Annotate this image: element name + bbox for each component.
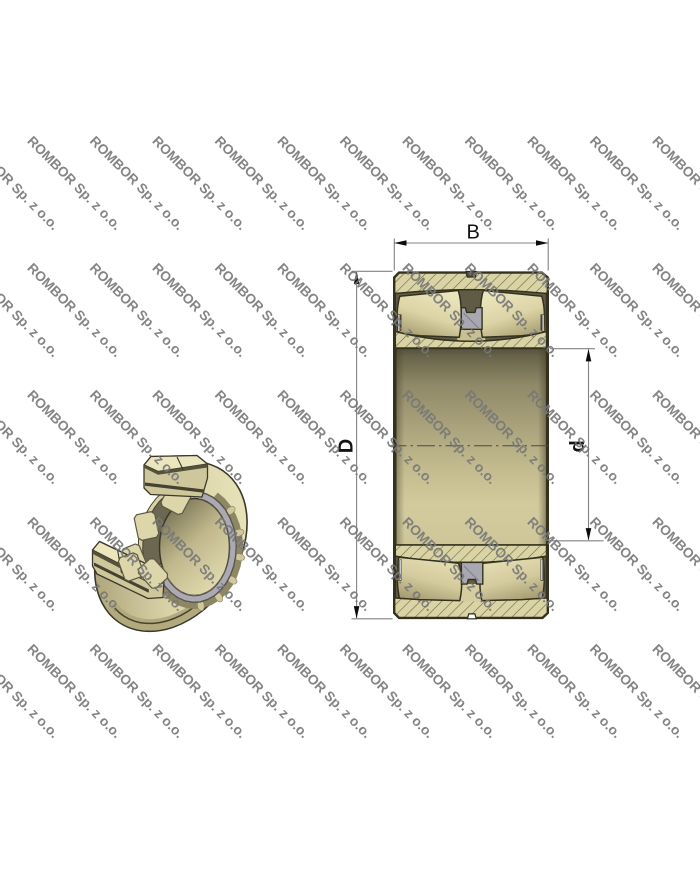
svg-text:B: B (467, 221, 480, 243)
